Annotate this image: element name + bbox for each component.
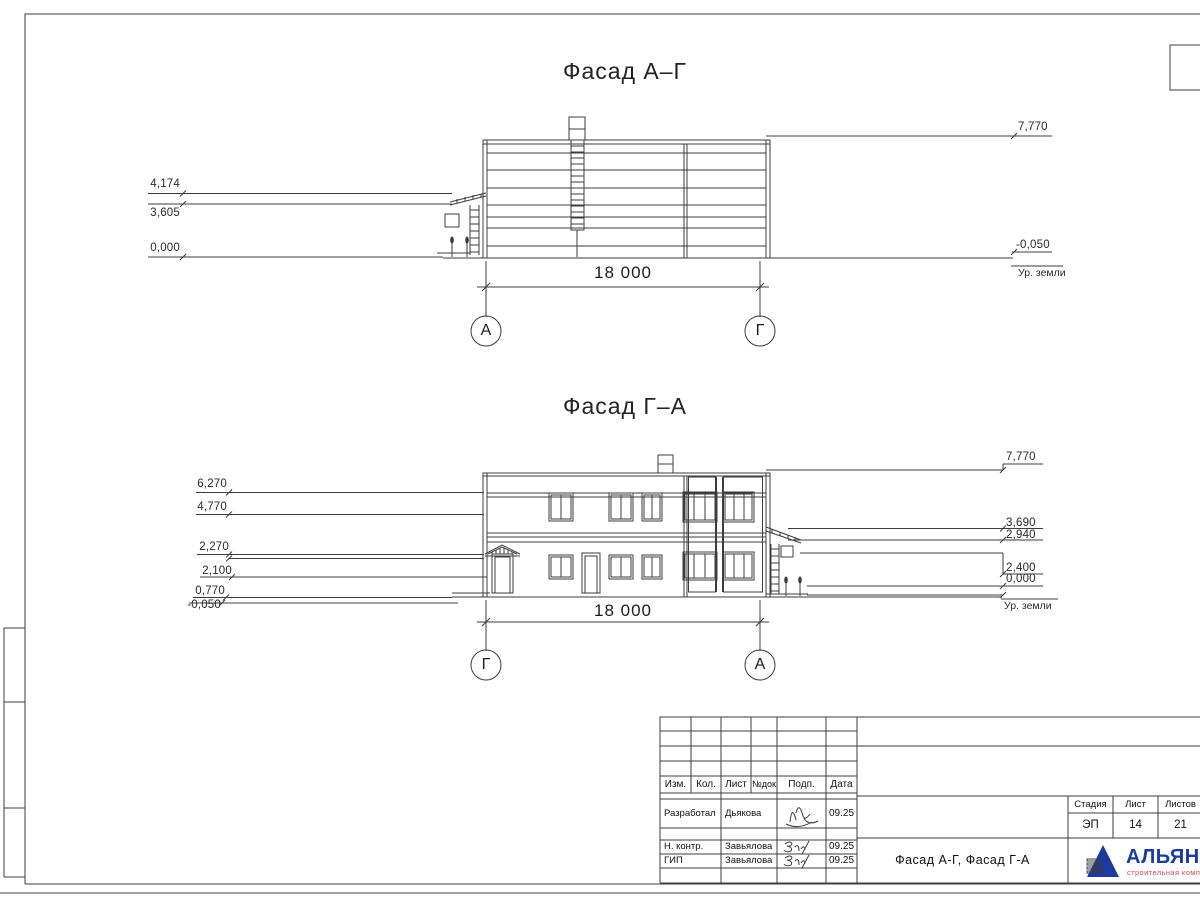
drawing-sheet: Фасад А–Г 4,174 3,605 0,000 7,770 -0,050… (0, 0, 1200, 900)
tb-date: 09.25 (826, 799, 857, 828)
facade2-title: Фасад Г–А (430, 393, 820, 420)
tb-col-doc: №док (751, 776, 777, 793)
facade1-title: Фасад А–Г (430, 58, 820, 85)
dimension-label: 18 000 (558, 263, 688, 283)
tb-col-kol: Кол. (691, 776, 721, 793)
stage-label: Стадия (1068, 796, 1113, 813)
tb-role: Разработал (661, 799, 723, 828)
company-name: АЛЬЯНС (1126, 846, 1200, 869)
axis-bubble-g: Г (745, 316, 775, 346)
tb-col-list: Лист (721, 776, 751, 793)
company-tagline: строительная компания (1127, 868, 1200, 877)
doc-title: Фасад А-Г, Фасад Г-А (857, 838, 1068, 883)
elevation-mark: 6,270 (193, 478, 227, 490)
tb-col-izm: Изм. (660, 776, 691, 793)
elevation-mark: 0,000 (146, 242, 180, 254)
elevation-mark: 7,770 (1018, 121, 1048, 133)
elevation-mark: 3,605 (146, 207, 180, 219)
tb-role: Н. контр. (661, 840, 723, 854)
sheets-label: Листов (1158, 796, 1200, 813)
tb-date: 09.25 (826, 854, 857, 868)
elevation-mark: 2,100 (198, 565, 232, 577)
signature-scribble (782, 854, 820, 869)
facade2-levels (189, 464, 1058, 606)
tb-col-podp: Подп. (777, 776, 826, 793)
company-logo-pyramid-icon (1085, 844, 1121, 878)
ground-level-label: Ур. земли (1004, 600, 1052, 612)
stage-value: ЭП (1068, 813, 1113, 838)
tb-name: Завьялова (722, 840, 779, 854)
facade1-building (437, 117, 1013, 258)
axis-bubble-g: Г (471, 650, 501, 680)
elevation-mark: 3,690 (1006, 517, 1036, 529)
tb-role: ГИП (661, 854, 723, 868)
elevation-mark: 0,000 (1006, 573, 1036, 585)
ground-level-label: Ур. земли (1018, 267, 1066, 279)
elevation-mark: 2,940 (1006, 529, 1036, 541)
axis-bubble-a: А (745, 650, 775, 680)
elevation-mark: -0,050 (1016, 239, 1050, 251)
elevation-mark: 0,770 (191, 585, 225, 597)
signature-scribble (782, 840, 820, 855)
sheet-number: 14 (1113, 813, 1158, 838)
tb-name: Дьякова (722, 799, 779, 828)
drawing-linework (0, 0, 1200, 900)
elevation-mark: 2,270 (195, 541, 229, 553)
elevation-mark: -0,050 (187, 599, 221, 611)
elevation-mark: 4,770 (193, 501, 227, 513)
sheets-total: 21 (1158, 813, 1200, 838)
dimension-label: 18 000 (558, 601, 688, 621)
elevation-mark: 7,770 (1006, 451, 1036, 463)
tb-name: Завьялова (722, 854, 779, 868)
axis-bubble-a: А (471, 316, 501, 346)
tb-col-data: Дата (826, 776, 857, 793)
signature-scribble (782, 800, 824, 828)
tb-date: 09.25 (826, 840, 857, 854)
elevation-mark: 4,174 (146, 178, 180, 190)
facade2-building (452, 455, 1002, 597)
sheet-label: Лист (1113, 796, 1158, 813)
